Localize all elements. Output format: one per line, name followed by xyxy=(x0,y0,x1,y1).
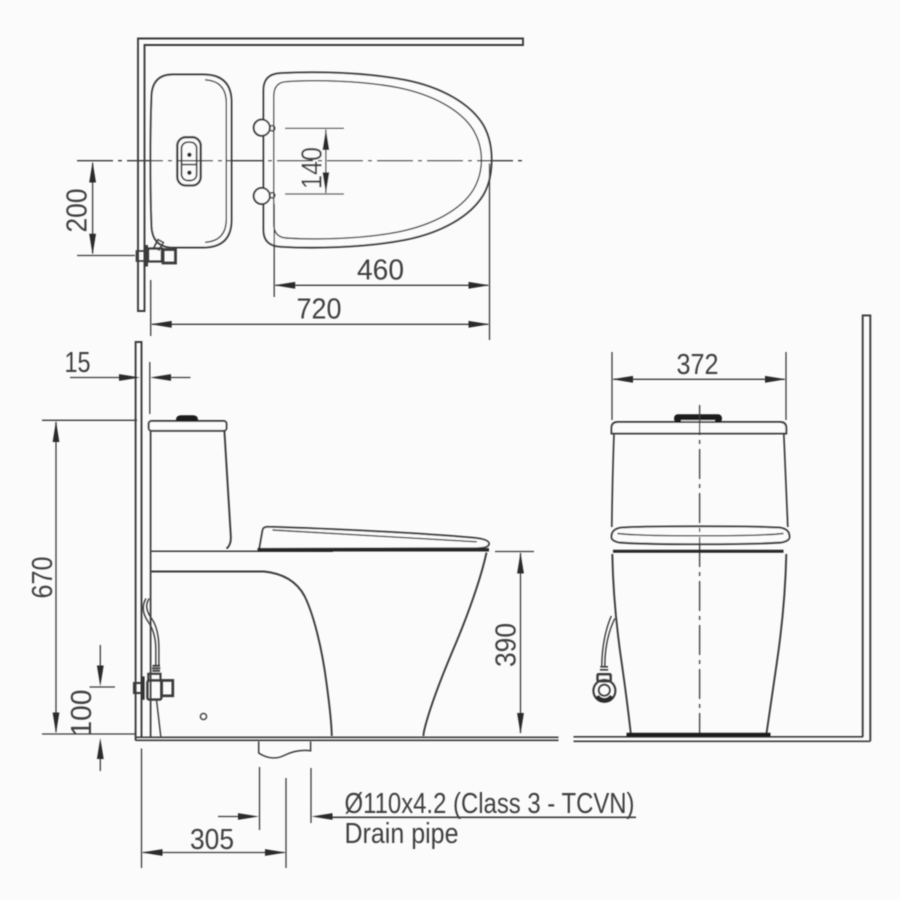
svg-text:Ø110x4.2 (Class 3 - TCVN): Ø110x4.2 (Class 3 - TCVN) xyxy=(345,788,635,820)
svg-text:372: 372 xyxy=(677,349,719,381)
svg-text:670: 670 xyxy=(27,557,59,599)
svg-text:200: 200 xyxy=(62,189,94,233)
svg-text:140: 140 xyxy=(297,147,329,189)
svg-text:100: 100 xyxy=(66,690,98,737)
svg-text:Drain pipe: Drain pipe xyxy=(345,818,459,850)
svg-text:720: 720 xyxy=(297,294,342,326)
svg-text:15: 15 xyxy=(65,347,91,379)
svg-text:305: 305 xyxy=(190,824,234,856)
svg-text:390: 390 xyxy=(491,623,523,667)
svg-text:460: 460 xyxy=(357,255,404,287)
